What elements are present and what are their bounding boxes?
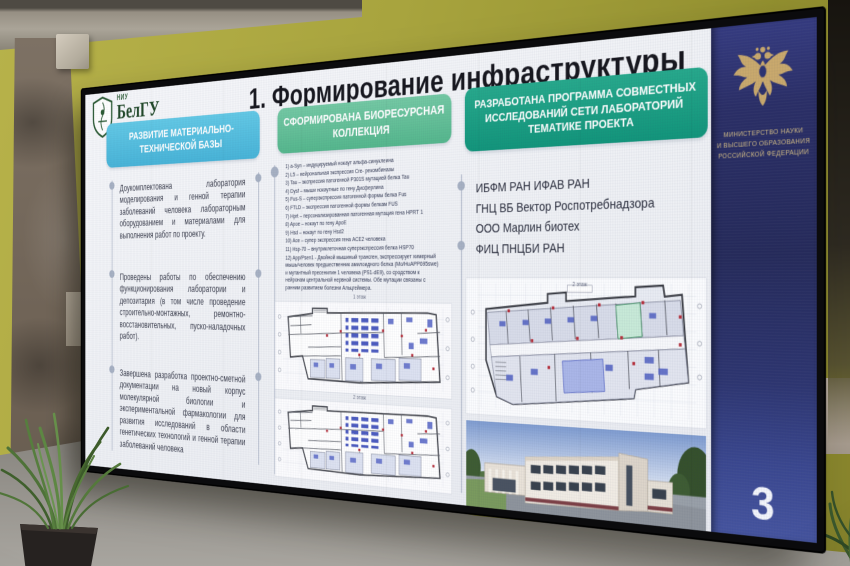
bullet-design-docs: Завершена разработка проектно-сметной до… bbox=[120, 367, 246, 461]
bioresource-lines-list: 1) a-Syn – индуцируемый нокаут альфа-син… bbox=[285, 153, 442, 293]
timeline-rail-col1-right bbox=[258, 172, 259, 465]
ministry-title: МИНИСТЕРСТВО НАУКИ И ВЫСШЕГО ОБРАЗОВАНИЯ… bbox=[711, 125, 817, 164]
plant-left bbox=[0, 404, 138, 566]
timeline-dot bbox=[109, 270, 114, 278]
ministry-strip: МИНИСТЕРСТВО НАУКИ И ВЫСШЕГО ОБРАЗОВАНИЯ… bbox=[711, 17, 817, 543]
room-photo: НИУ БелГУ BELGOROD STATE UNIVERSITY (BSU… bbox=[0, 0, 850, 566]
building-render bbox=[466, 420, 706, 531]
timeline-dot bbox=[255, 173, 261, 182]
ministry-eagle-icon bbox=[728, 33, 798, 125]
floor-plan-large bbox=[466, 278, 706, 428]
screen-surface: НИУ БелГУ BELGOROD STATE UNIVERSITY (BSU… bbox=[85, 17, 816, 543]
org-item: ФИЦ ПНЦБИ РАН bbox=[476, 235, 703, 260]
partner-orgs-list: ИБФМ РАН ИФАВ РАН ГНЦ ВБ Вектор Роспотре… bbox=[476, 168, 703, 260]
floor-plan-large-caption: 2 этаж bbox=[466, 282, 706, 289]
bullet-lab-operation: Проведены работы по обеспечению функцион… bbox=[120, 271, 246, 347]
timeline-dot bbox=[457, 241, 464, 250]
presentation-slide: НИУ БелГУ BELGOROD STATE UNIVERSITY (BSU… bbox=[85, 28, 711, 531]
floor-plan-1-caption: 1 этаж bbox=[275, 294, 451, 301]
floor-plan-1 bbox=[275, 302, 451, 399]
wall-speaker bbox=[56, 34, 89, 69]
floor-plan-2 bbox=[275, 398, 451, 494]
timeline-dot bbox=[457, 181, 464, 191]
timeline-dot bbox=[109, 182, 114, 190]
right-wall-shadow bbox=[828, 0, 850, 444]
timeline-dot bbox=[255, 269, 261, 277]
line-item: 12) App/Psen1 - Двойной мышиный трансген… bbox=[285, 252, 442, 293]
timeline-dot bbox=[271, 166, 279, 177]
timeline-dot bbox=[109, 365, 114, 373]
slide-page-number: 3 bbox=[711, 474, 817, 537]
timeline-dot bbox=[255, 372, 261, 381]
timeline-rail-col3 bbox=[461, 174, 462, 493]
led-screen: НИУ БелГУ BELGOROD STATE UNIVERSITY (BSU… bbox=[81, 6, 826, 554]
bullet-lab-equipment: Доукомплектована лаборатория моделирован… bbox=[120, 176, 246, 242]
